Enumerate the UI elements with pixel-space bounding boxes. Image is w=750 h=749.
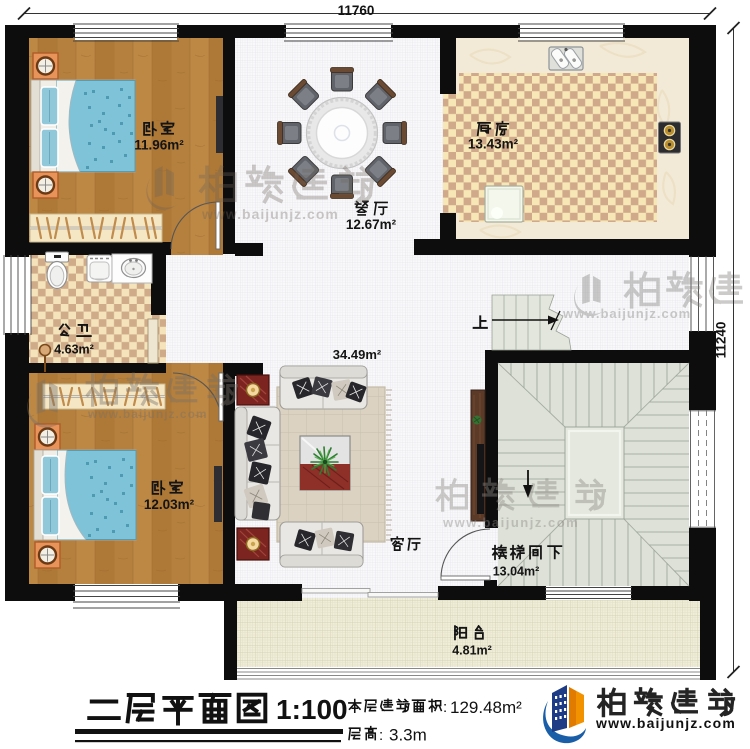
- svg-text:12.67m²: 12.67m²: [346, 217, 397, 232]
- svg-text:1:100: 1:100: [276, 694, 348, 725]
- svg-text:3.3m: 3.3m: [389, 726, 427, 745]
- svg-text::: :: [443, 699, 447, 716]
- svg-text:11.96m²: 11.96m²: [134, 138, 184, 153]
- svg-text:www.baijunjz.com: www.baijunjz.com: [201, 206, 339, 222]
- svg-text:13.04m²: 13.04m²: [493, 565, 540, 579]
- svg-text:www.baijunjz.com: www.baijunjz.com: [562, 306, 691, 321]
- svg-text:11240: 11240: [714, 322, 729, 359]
- svg-text::: :: [379, 727, 383, 744]
- svg-text:www.baijunjz.com: www.baijunjz.com: [87, 407, 208, 421]
- svg-text:12.03m²: 12.03m²: [144, 497, 195, 512]
- svg-text:4.81m²: 4.81m²: [452, 644, 492, 658]
- svg-text:www.baijunjz.com: www.baijunjz.com: [595, 715, 736, 731]
- svg-text:13.43m²: 13.43m²: [468, 137, 519, 152]
- svg-text:129.48m²: 129.48m²: [450, 698, 522, 717]
- svg-text:34.49m²: 34.49m²: [333, 347, 382, 362]
- svg-text:11760: 11760: [338, 3, 375, 18]
- svg-text:4.63m²: 4.63m²: [54, 343, 94, 357]
- svg-text:www.baijunjz.com: www.baijunjz.com: [442, 515, 579, 530]
